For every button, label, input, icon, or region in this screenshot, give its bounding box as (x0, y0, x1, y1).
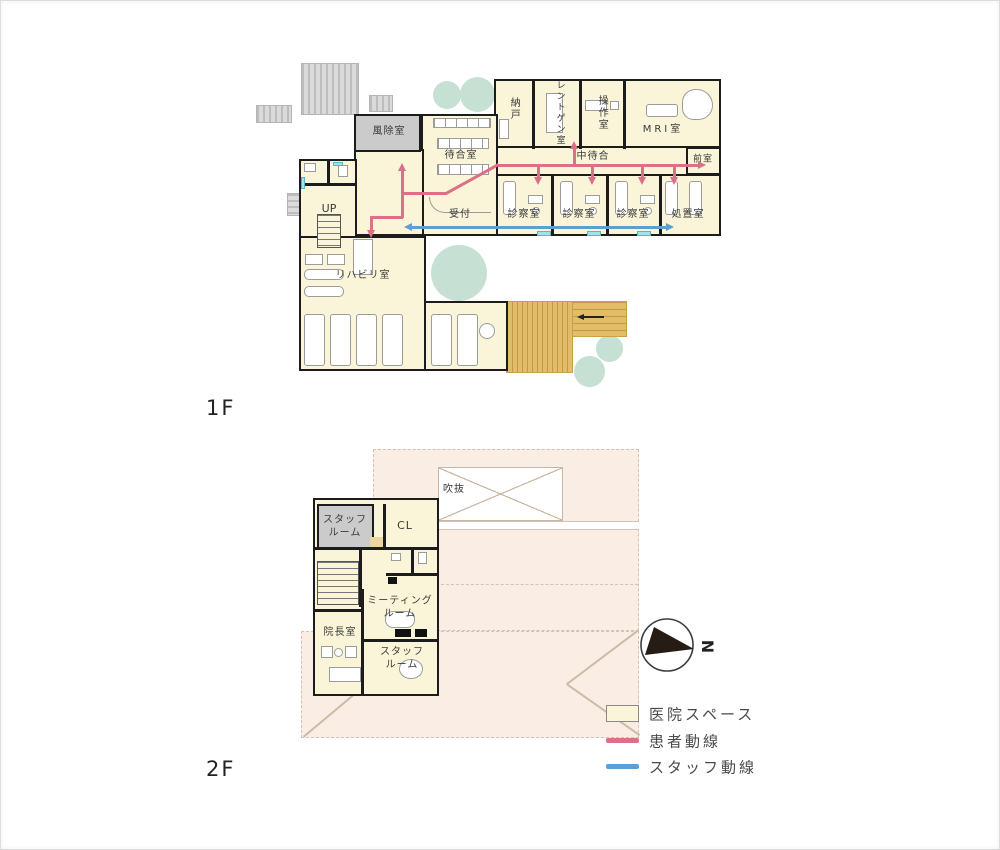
patient-flow-line (573, 148, 576, 165)
wall (327, 159, 330, 185)
north-label: N (698, 640, 717, 653)
sofa (345, 646, 357, 658)
tree (596, 335, 623, 362)
patient-flow-arrow-icon (588, 177, 596, 185)
room-label-anteroom: 前室 (693, 154, 713, 165)
patient-flow-arrow-icon (398, 163, 406, 171)
room-label-void: 吹抜 (443, 484, 465, 497)
rehab-bed (457, 314, 478, 366)
patient-flow-arrow-icon (534, 177, 542, 185)
window (333, 162, 343, 166)
legend-swatch-clinic-space (606, 705, 639, 722)
room-label-staff-b: スタッフ ルーム (380, 647, 424, 672)
room-label-xray: レントゲン室 (553, 80, 564, 146)
room-label-control: 操作室 (595, 95, 608, 131)
toilet-fixture (391, 553, 401, 561)
room-label-exam-2: 診察室 (563, 209, 596, 222)
toilet-fixture (338, 165, 348, 177)
patient-flow-line (370, 216, 403, 219)
wall (315, 609, 363, 612)
neighbor-building (301, 63, 359, 115)
tree (574, 356, 605, 387)
room-label-line: スタッフ (323, 515, 367, 528)
kitchen-counter (395, 629, 411, 637)
rehab-bed (431, 314, 452, 366)
legend-label-patient-flow: 患者動線 (649, 731, 721, 752)
wood-deck (506, 301, 573, 373)
staff-flow-arrow-icon (666, 223, 674, 231)
wall (383, 504, 386, 550)
patient-flow-line (401, 192, 404, 218)
room-label-waiting: 待合室 (445, 150, 478, 163)
director-desk (329, 667, 361, 682)
steps-direction-arrow-icon (577, 314, 584, 320)
kitchen-counter (415, 629, 427, 637)
room-label-line: ルーム (323, 527, 367, 540)
locker (305, 254, 323, 265)
sink-fixture (388, 577, 397, 584)
room-label-windbreak: 風除室 (373, 126, 406, 139)
room-label-line: スタッフ (380, 647, 424, 660)
room-label-meeting: ミーティング ルーム (367, 596, 432, 621)
room-label-director: 院長室 (324, 627, 357, 640)
room-label-exam-3: 診察室 (617, 209, 650, 222)
legend-swatch-patient-flow (606, 738, 639, 743)
mri-gantry (682, 89, 713, 120)
sofa (321, 646, 333, 658)
waiting-bench (437, 138, 489, 149)
room-label-line: ミーティング (367, 596, 432, 609)
side-table (334, 648, 343, 657)
wall (411, 549, 414, 575)
floor-plan-page: 風除室 待合室 納戸 レントゲン室 操作室 MRI室 中待合 前室 UP 受付 … (0, 0, 1000, 850)
waiting-shelf (433, 118, 491, 128)
window (587, 231, 601, 236)
legend-label-clinic-space: 医院スペース (649, 704, 755, 725)
room-label-stairs-up: UP (322, 202, 337, 216)
patient-flow-corridor-line (498, 164, 699, 167)
stairs-1f (317, 214, 341, 248)
room-label-line: ルーム (367, 608, 432, 621)
window (637, 231, 651, 236)
roof-gap-band (438, 521, 639, 530)
patient-flow-line (370, 216, 373, 231)
patient-flow-line (401, 192, 447, 195)
roof-dash-line (441, 584, 638, 585)
exam-desk (528, 195, 543, 204)
tree (431, 245, 487, 301)
room-label-staff-a: スタッフ ルーム (323, 515, 367, 540)
neighbor-building (369, 95, 393, 112)
room-label-reception: 受付 (449, 209, 471, 222)
tree (460, 77, 495, 112)
room-label-line: ルーム (380, 659, 424, 672)
room-label-mid-waiting: 中待合 (577, 151, 610, 164)
exam-desk (640, 195, 655, 204)
wheelchair-icon (479, 323, 495, 339)
patient-flow-arrow-icon (367, 230, 375, 238)
floor-title-2f: 2F (206, 757, 235, 781)
rehab-bed (304, 314, 325, 366)
window (301, 177, 305, 189)
mri-table (646, 104, 678, 117)
toilet-fixture (304, 163, 316, 172)
room-label-rehab: リハビリ室 (336, 270, 391, 283)
storage-shelf (499, 119, 509, 139)
room-label-mri: MRI室 (643, 124, 684, 137)
rehab-bed (356, 314, 377, 366)
room-label-exam-1: 診察室 (508, 209, 541, 222)
wall (315, 547, 437, 550)
tree (433, 81, 461, 109)
control-chair (610, 101, 619, 110)
steps-direction-line (584, 316, 604, 318)
stairs-2f (317, 561, 359, 605)
exam-desk (585, 195, 600, 204)
rehab-machine (304, 286, 344, 297)
patient-flow-arrow-icon (670, 177, 678, 185)
toilet-fixture (418, 552, 427, 564)
wall (532, 79, 535, 149)
rehab-bed (382, 314, 403, 366)
rehab-bed (330, 314, 351, 366)
patient-flow-arrow-icon (570, 141, 578, 149)
room-label-closet: CL (397, 519, 413, 533)
wall (361, 589, 364, 696)
wall (623, 79, 626, 149)
window (537, 231, 551, 236)
wall (386, 573, 439, 576)
patient-flow-line (401, 171, 404, 194)
legend-swatch-staff-flow (606, 764, 639, 769)
legend-label-staff-flow: スタッフ動線 (649, 757, 757, 778)
patient-flow-arrow-icon (638, 177, 646, 185)
room-label-treatment: 処置室 (672, 209, 705, 222)
staff-flow-line (411, 226, 667, 229)
wall (579, 79, 582, 149)
wall (361, 639, 439, 642)
floor-title-1f: 1F (206, 396, 235, 420)
staff-flow-arrow-icon (404, 223, 412, 231)
neighbor-building (256, 105, 292, 123)
locker (327, 254, 345, 265)
room-label-storage: 納戸 (507, 97, 520, 121)
